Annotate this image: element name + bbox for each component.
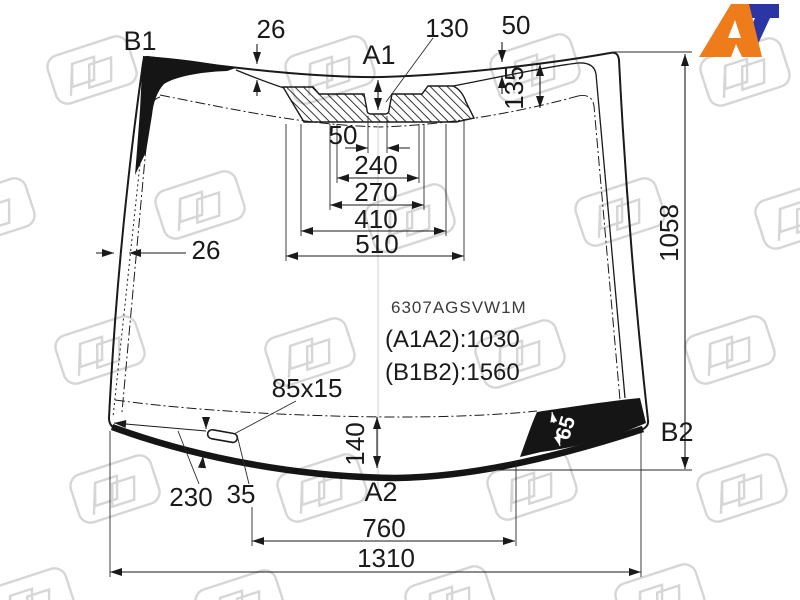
dim-760: 760 — [362, 513, 405, 543]
windshield-drawing: B1 26 A1 130 50 135 50 240 270 410 510 2… — [0, 0, 800, 600]
part-number: 6307AGSVW1M — [391, 298, 527, 317]
ceramic-areas — [112, 56, 646, 478]
label-a1: A1 — [362, 40, 395, 70]
dim-240: 240 — [354, 150, 397, 180]
dim-top-edge-26: 26 — [257, 14, 286, 44]
label-a2: A2 — [364, 477, 397, 507]
dim-notch-50: 50 — [329, 120, 358, 150]
dim-1058: 1058 — [654, 204, 684, 262]
at-logo: A T — [699, 2, 779, 57]
dim-230: 230 — [169, 482, 212, 512]
b1-corner-tint — [135, 56, 236, 175]
label-b1: B1 — [123, 26, 156, 56]
dashdot-right — [578, 95, 620, 400]
drawing-svg: B1 26 A1 130 50 135 50 240 270 410 510 2… — [0, 0, 800, 600]
dim-130: 130 — [425, 13, 468, 43]
dim-top-right-50: 50 — [502, 10, 531, 40]
dim-pad-85x15: 85x15 — [272, 373, 343, 403]
dim-35: 35 — [227, 479, 256, 509]
dim-left-edge-26: 26 — [192, 235, 221, 265]
mount-pad — [207, 429, 238, 443]
label-b2: B2 — [660, 417, 693, 447]
dim-1310: 1310 — [357, 543, 415, 573]
